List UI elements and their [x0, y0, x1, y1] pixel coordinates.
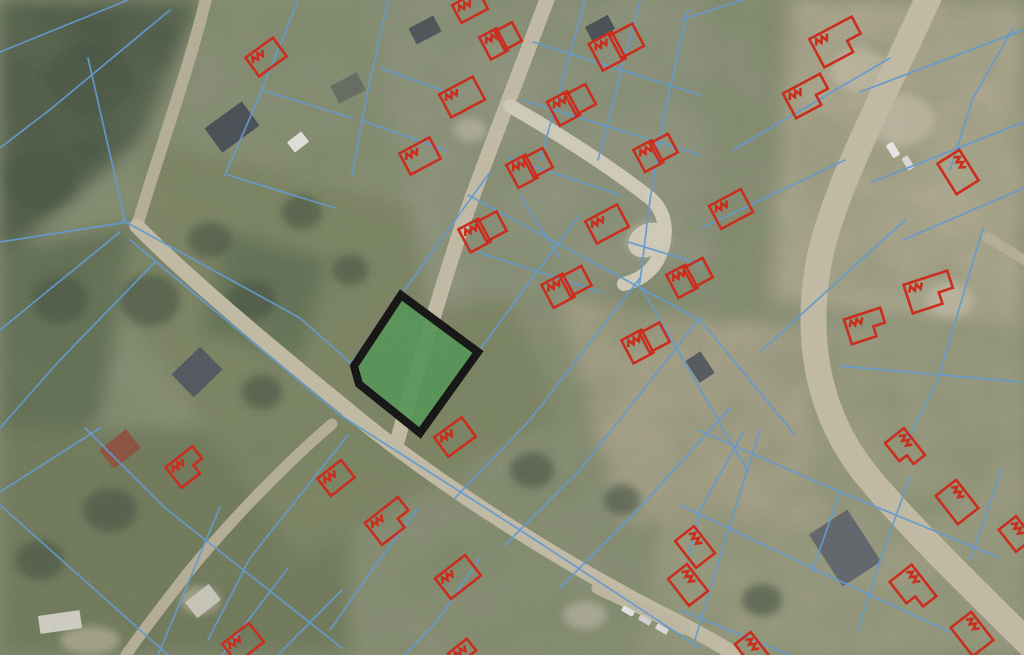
map-viewport[interactable]	[0, 0, 1024, 655]
map-canvas[interactable]	[0, 0, 1024, 655]
grain-overlay-dark	[0, 0, 1024, 655]
